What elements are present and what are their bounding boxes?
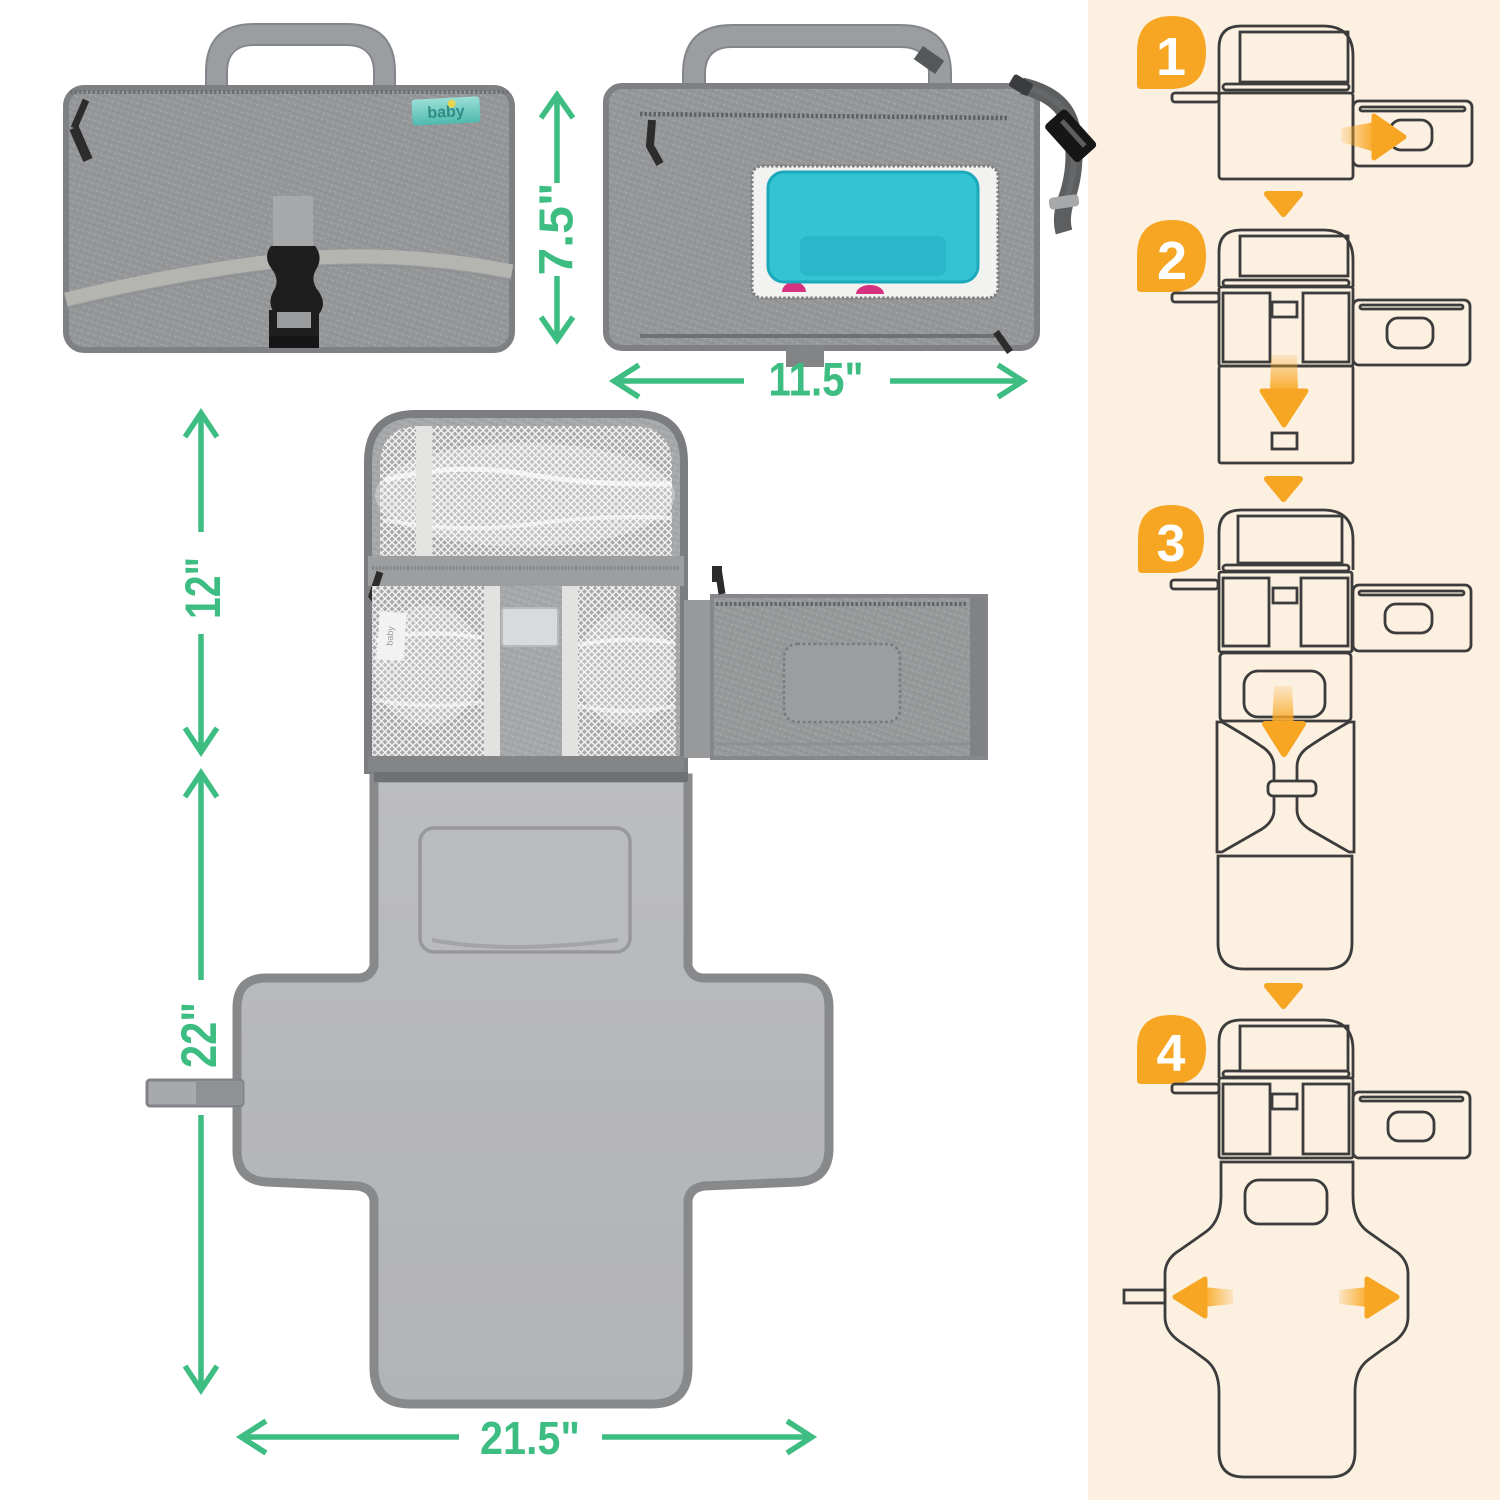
svg-text:4: 4 [1157, 1025, 1186, 1083]
svg-text:2: 2 [1157, 231, 1187, 291]
svg-text:baby: baby [427, 103, 465, 122]
svg-text:22": 22" [171, 1002, 227, 1068]
svg-text:baby: baby [384, 625, 395, 646]
svg-text:12": 12" [175, 557, 231, 619]
svg-text:21.5": 21.5" [480, 1412, 580, 1464]
svg-text:3: 3 [1157, 515, 1186, 573]
svg-text:1: 1 [1156, 27, 1186, 87]
svg-text:11.5": 11.5" [769, 353, 864, 406]
svg-text:7.5": 7.5" [531, 183, 584, 276]
